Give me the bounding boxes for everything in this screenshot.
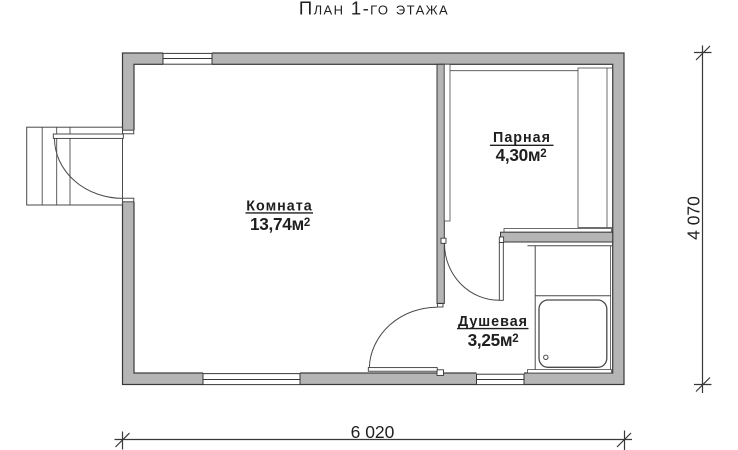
svg-text:Душевая: Душевая bbox=[458, 314, 528, 330]
svg-text:6 020: 6 020 bbox=[351, 422, 395, 442]
svg-text:4,30м2: 4,30м2 bbox=[496, 145, 547, 165]
svg-text:Парная: Парная bbox=[493, 130, 551, 146]
svg-text:4 070: 4 070 bbox=[684, 196, 704, 240]
svg-text:13,74м2: 13,74м2 bbox=[250, 214, 310, 234]
svg-text:3,25м2: 3,25м2 bbox=[468, 330, 519, 350]
svg-text:План 1-го этажа: План 1-го этажа bbox=[299, 0, 449, 18]
